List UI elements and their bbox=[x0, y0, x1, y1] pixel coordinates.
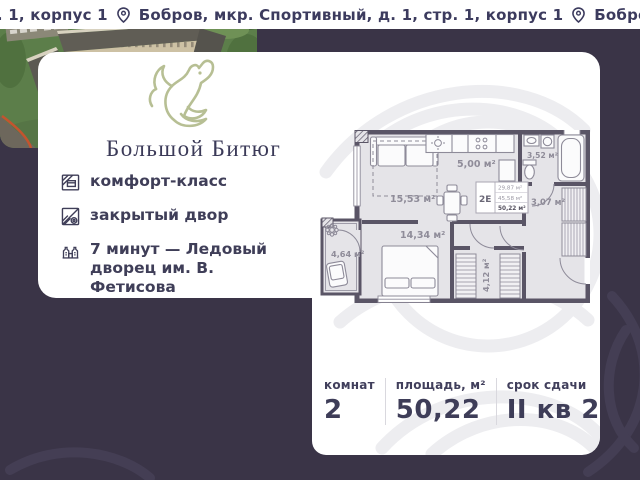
feature-comfort-class: комфорт-класс bbox=[60, 172, 304, 193]
floor-plan-card: 15,53 м² 5,00 м² 3,52 м² 3,07 м² 14,34 м… bbox=[312, 52, 600, 455]
param-rooms-label: комнат bbox=[324, 378, 375, 392]
apartment-params: комнат 2 площадь, м² 50,22 срок сдачи II… bbox=[322, 378, 600, 425]
stamp-total-area: 50,22 м² bbox=[498, 205, 526, 212]
horse-logo-icon bbox=[122, 58, 262, 134]
brand-card: Большой Битюг комфорт-класс bbox=[38, 52, 312, 298]
room-label-hallway: 3,07 м² bbox=[531, 197, 565, 207]
address-segment: Бобров, м bbox=[594, 6, 640, 24]
stamp-living-area: 29,87 м² bbox=[498, 185, 522, 192]
param-area-value: 50,22 bbox=[396, 395, 486, 425]
feature-list: комфорт-класс закрытый двор bbox=[60, 172, 304, 297]
address-segment: р. 1, корпус 1 bbox=[0, 6, 108, 24]
address-bar: р. 1, корпус 1 Бобров, мкр. Спортивный, … bbox=[0, 0, 640, 29]
brand-name: Большой Битюг bbox=[40, 136, 340, 162]
stamp-area-without-balcony: 45,58 м² bbox=[498, 195, 522, 202]
param-area: площадь, м² 50,22 bbox=[385, 378, 496, 425]
stamp-type: 2Е bbox=[479, 195, 491, 205]
ice-palace-icon bbox=[60, 240, 81, 261]
room-label-bedroom: 14,34 м² bbox=[400, 230, 445, 241]
param-deadline-label: срок сдачи bbox=[507, 378, 600, 392]
floor-plan-figure: 15,53 м² 5,00 м² 3,52 м² 3,07 м² 14,34 м… bbox=[318, 130, 590, 303]
param-area-label: площадь, м² bbox=[396, 378, 486, 392]
param-rooms: комнат 2 bbox=[322, 378, 385, 425]
feature-label: 7 минут — Ледовый дворец им. В. Фетисова bbox=[90, 240, 304, 297]
param-deadline: срок сдачи II кв 2028 bbox=[496, 378, 600, 425]
address-ticker: р. 1, корпус 1 Бобров, мкр. Спортивный, … bbox=[0, 6, 640, 24]
comfort-class-icon bbox=[60, 172, 81, 193]
param-deadline-value: II кв 2028 bbox=[507, 395, 600, 425]
room-label-balcony: 4,64 м² bbox=[331, 249, 365, 259]
room-label-living: 15,53 м² bbox=[390, 194, 435, 205]
param-rooms-value: 2 bbox=[324, 395, 375, 425]
room-label-kitchen: 5,00 м² bbox=[457, 159, 496, 170]
apartment-type-stamp: 2Е 29,87 м² 45,58 м² 50,22 м² bbox=[476, 182, 528, 213]
feature-label: комфорт-класс bbox=[90, 172, 227, 191]
room-label-closet: 4,12 м² bbox=[481, 258, 491, 292]
feature-closed-yard: закрытый двор bbox=[60, 206, 304, 227]
address-segment: Бобров, мкр. Спортивный, д. 1, стр. 1, к… bbox=[139, 6, 564, 24]
closed-yard-icon bbox=[60, 206, 81, 227]
ad-banner: р. 1, корпус 1 Бобров, мкр. Спортивный, … bbox=[0, 0, 640, 480]
feature-ice-palace: 7 минут — Ледовый дворец им. В. Фетисова bbox=[60, 240, 304, 297]
feature-label: закрытый двор bbox=[90, 206, 228, 225]
location-pin-icon bbox=[117, 7, 130, 23]
room-label-bathroom: 3,52 м² bbox=[527, 151, 558, 160]
location-pin-icon bbox=[572, 7, 585, 23]
